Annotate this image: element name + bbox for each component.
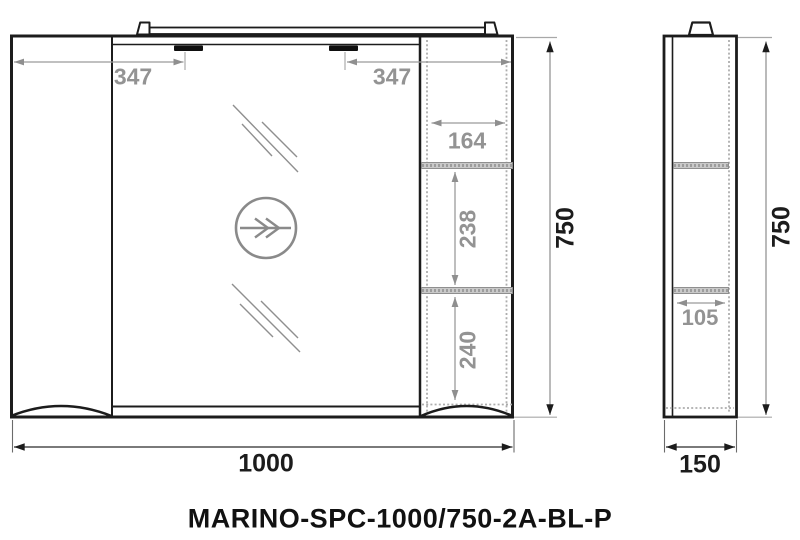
front-view-drawing <box>10 23 514 418</box>
dim-label-1000: 1000 <box>238 452 294 477</box>
dim-label-240: 240 <box>457 331 480 369</box>
front-dimensions-gray <box>14 52 511 400</box>
side-light-clip <box>689 23 713 36</box>
light-clip-right <box>485 23 498 35</box>
shelf-upper <box>422 163 513 169</box>
technical-drawing-page: 347 347 164 238 240 750 1000 105 750 150… <box>0 0 800 540</box>
column-arch <box>421 406 513 416</box>
spotlight-left <box>174 46 203 52</box>
dim-label-238: 238 <box>457 210 480 248</box>
dim-label-750-side: 750 <box>770 206 795 248</box>
dim-label-105: 105 <box>682 307 719 329</box>
light-clip-left <box>137 23 150 35</box>
side-shelf-upper <box>674 163 729 169</box>
front-cabinet-outline <box>10 35 514 417</box>
spotlight-right <box>329 46 358 52</box>
side-view-drawing <box>664 23 737 418</box>
dim-label-750-front: 750 <box>554 207 579 249</box>
dim-label-150: 150 <box>679 453 721 478</box>
side-shelf-lower <box>674 288 729 294</box>
side-cabinet-outline <box>664 36 737 417</box>
dim-label-347-right: 347 <box>373 66 411 89</box>
shelf-lower <box>422 288 513 294</box>
product-model-title: MARINO-SPC-1000/750-2A-BL-P <box>188 504 613 535</box>
front-left-panel <box>11 35 112 416</box>
dim-label-164: 164 <box>448 130 486 153</box>
dim-label-347-left: 347 <box>114 66 152 89</box>
light-bar <box>149 28 490 35</box>
left-panel-arch <box>11 406 112 416</box>
mirror-logo-icon <box>236 198 296 258</box>
